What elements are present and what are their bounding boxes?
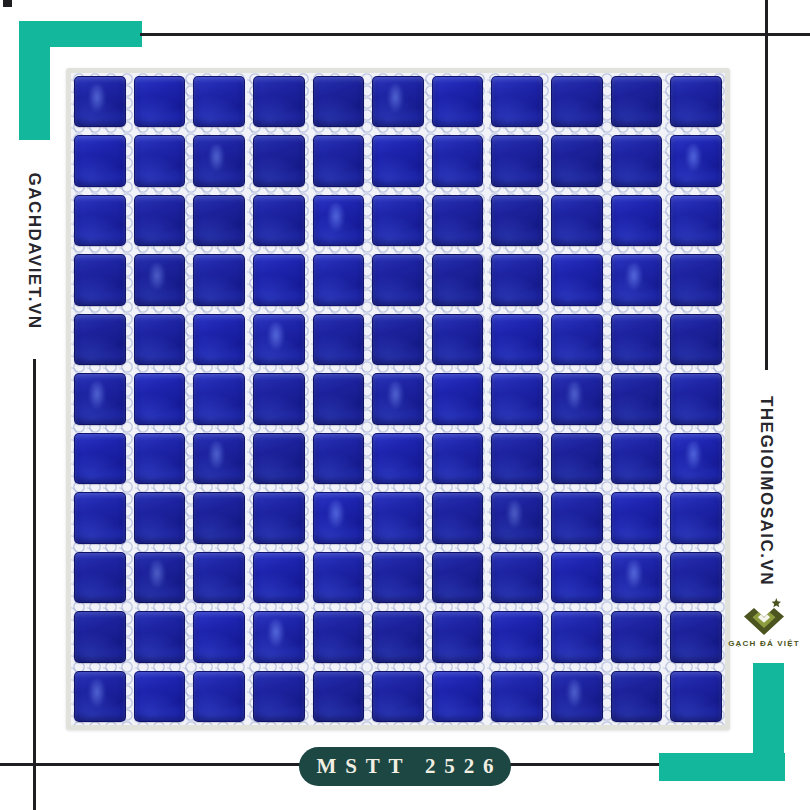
corner-chip-top-left	[3, 0, 12, 7]
mosaic-tile	[372, 76, 424, 127]
mosaic-tile	[670, 76, 722, 127]
mosaic-tile	[432, 373, 484, 424]
mosaic-tile	[372, 195, 424, 246]
product-photo: GACHDAVIET.VN THEGIOIMOSAIC.VN GẠCH ĐÁ V…	[0, 0, 810, 810]
mosaic-tile	[253, 373, 305, 424]
mosaic-tile	[611, 254, 663, 305]
mosaic-tile	[611, 135, 663, 186]
mosaic-tile	[611, 492, 663, 543]
rule-line-right	[765, 0, 768, 370]
mosaic-tile	[551, 254, 603, 305]
mosaic-tile	[611, 552, 663, 603]
mosaic-tile	[491, 433, 543, 484]
mosaic-tile	[193, 433, 245, 484]
mosaic-tile	[253, 195, 305, 246]
mosaic-tile	[551, 135, 603, 186]
mosaic-tile	[193, 195, 245, 246]
mosaic-tile	[432, 254, 484, 305]
mosaic-tile	[432, 314, 484, 365]
mosaic-tile	[134, 552, 186, 603]
mosaic-tile	[313, 195, 365, 246]
mosaic-tile	[74, 373, 126, 424]
mosaic-tile	[551, 433, 603, 484]
mosaic-tile	[432, 552, 484, 603]
mosaic-tile	[74, 492, 126, 543]
mosaic-tile	[372, 254, 424, 305]
mosaic-tile	[491, 552, 543, 603]
mosaic-tile	[611, 611, 663, 662]
mosaic-tile	[134, 76, 186, 127]
mosaic-tile	[74, 611, 126, 662]
mosaic-tile	[491, 671, 543, 722]
mosaic-tile	[253, 611, 305, 662]
mosaic-tile	[193, 135, 245, 186]
site-name-left: GACHDAVIET.VN	[24, 172, 44, 329]
mosaic-tile	[611, 671, 663, 722]
rule-line-left	[33, 359, 36, 810]
product-code-badge: MSTT 2526	[299, 747, 511, 786]
mosaic-tile	[193, 254, 245, 305]
mosaic-tile	[551, 492, 603, 543]
mosaic-tile	[491, 314, 543, 365]
mosaic-tile	[313, 671, 365, 722]
mosaic-tile	[372, 492, 424, 543]
mosaic-tile	[551, 195, 603, 246]
teal-corner-bottom-right	[659, 753, 785, 781]
mosaic-tile	[432, 195, 484, 246]
mosaic-tile	[134, 671, 186, 722]
mosaic-tile	[372, 433, 424, 484]
mosaic-tile	[670, 611, 722, 662]
mosaic-tile	[551, 552, 603, 603]
mosaic-tile	[372, 135, 424, 186]
mosaic-tile	[670, 433, 722, 484]
mosaic-tile	[551, 76, 603, 127]
mosaic-tile	[134, 314, 186, 365]
teal-corner-top-left-vertical	[19, 21, 50, 140]
mosaic-tile	[253, 492, 305, 543]
mosaic-tile	[253, 254, 305, 305]
mosaic-tile	[313, 611, 365, 662]
mosaic-tile	[134, 195, 186, 246]
rule-line-top	[140, 33, 810, 36]
mosaic-tile	[193, 671, 245, 722]
mosaic-tile	[134, 433, 186, 484]
mosaic-tile	[372, 671, 424, 722]
mosaic-tile	[74, 254, 126, 305]
mosaic-tile	[491, 611, 543, 662]
brand-logo: GẠCH ĐÁ VIỆT	[722, 597, 806, 648]
mosaic-tile	[134, 611, 186, 662]
mosaic-tile	[611, 373, 663, 424]
mosaic-tile	[432, 76, 484, 127]
mosaic-tile	[313, 76, 365, 127]
mosaic-tile	[74, 552, 126, 603]
mosaic-tile	[432, 611, 484, 662]
mosaic-tile	[491, 254, 543, 305]
mosaic-tile	[551, 314, 603, 365]
mosaic-tile	[372, 552, 424, 603]
mosaic-tile	[134, 373, 186, 424]
mosaic-tile	[253, 671, 305, 722]
mosaic-tile	[372, 373, 424, 424]
mosaic-tile	[253, 76, 305, 127]
mosaic-sheet	[66, 68, 730, 730]
mosaic-tile	[313, 492, 365, 543]
mosaic-tile	[670, 135, 722, 186]
mosaic-tile	[74, 671, 126, 722]
mosaic-tile	[611, 433, 663, 484]
mosaic-tile	[193, 76, 245, 127]
mosaic-tile	[74, 195, 126, 246]
mosaic-tile	[611, 314, 663, 365]
mosaic-grid	[71, 73, 725, 725]
mosaic-tile	[491, 195, 543, 246]
mosaic-tile	[74, 433, 126, 484]
diamond-chevron-star-icon	[739, 597, 789, 637]
mosaic-tile	[491, 492, 543, 543]
mosaic-tile	[313, 314, 365, 365]
mosaic-tile	[491, 373, 543, 424]
mosaic-tile	[313, 135, 365, 186]
mosaic-tile	[372, 314, 424, 365]
mosaic-tile	[193, 552, 245, 603]
mosaic-tile	[313, 373, 365, 424]
mosaic-tile	[432, 433, 484, 484]
site-name-right: THEGIOIMOSAIC.VN	[756, 396, 776, 586]
mosaic-tile	[670, 671, 722, 722]
product-code-label: MSTT 2526	[308, 754, 503, 779]
mosaic-tile	[670, 492, 722, 543]
mosaic-tile	[193, 492, 245, 543]
mosaic-tile	[551, 671, 603, 722]
mosaic-tile	[74, 314, 126, 365]
mosaic-tile	[74, 76, 126, 127]
mosaic-tile	[611, 195, 663, 246]
mosaic-tile	[670, 195, 722, 246]
mosaic-tile	[253, 314, 305, 365]
mosaic-tile	[491, 135, 543, 186]
mosaic-tile	[134, 135, 186, 186]
mosaic-tile	[74, 135, 126, 186]
mosaic-tile	[432, 671, 484, 722]
mosaic-tile	[193, 611, 245, 662]
mosaic-tile	[313, 552, 365, 603]
mosaic-tile	[372, 611, 424, 662]
mosaic-tile	[253, 135, 305, 186]
mosaic-tile	[432, 135, 484, 186]
mosaic-tile	[253, 433, 305, 484]
mosaic-tile	[491, 76, 543, 127]
mosaic-tile	[670, 314, 722, 365]
mosaic-tile	[551, 611, 603, 662]
mosaic-tile	[193, 314, 245, 365]
mosaic-tile	[551, 373, 603, 424]
mosaic-tile	[670, 552, 722, 603]
mosaic-tile	[134, 492, 186, 543]
mosaic-tile	[313, 433, 365, 484]
mosaic-tile	[134, 254, 186, 305]
mosaic-tile	[253, 552, 305, 603]
mosaic-tile	[670, 254, 722, 305]
mosaic-tile	[193, 373, 245, 424]
mosaic-tile	[670, 373, 722, 424]
mosaic-tile	[611, 76, 663, 127]
mosaic-tile	[432, 492, 484, 543]
brand-logo-caption: GẠCH ĐÁ VIỆT	[728, 639, 800, 648]
mosaic-tile	[313, 254, 365, 305]
